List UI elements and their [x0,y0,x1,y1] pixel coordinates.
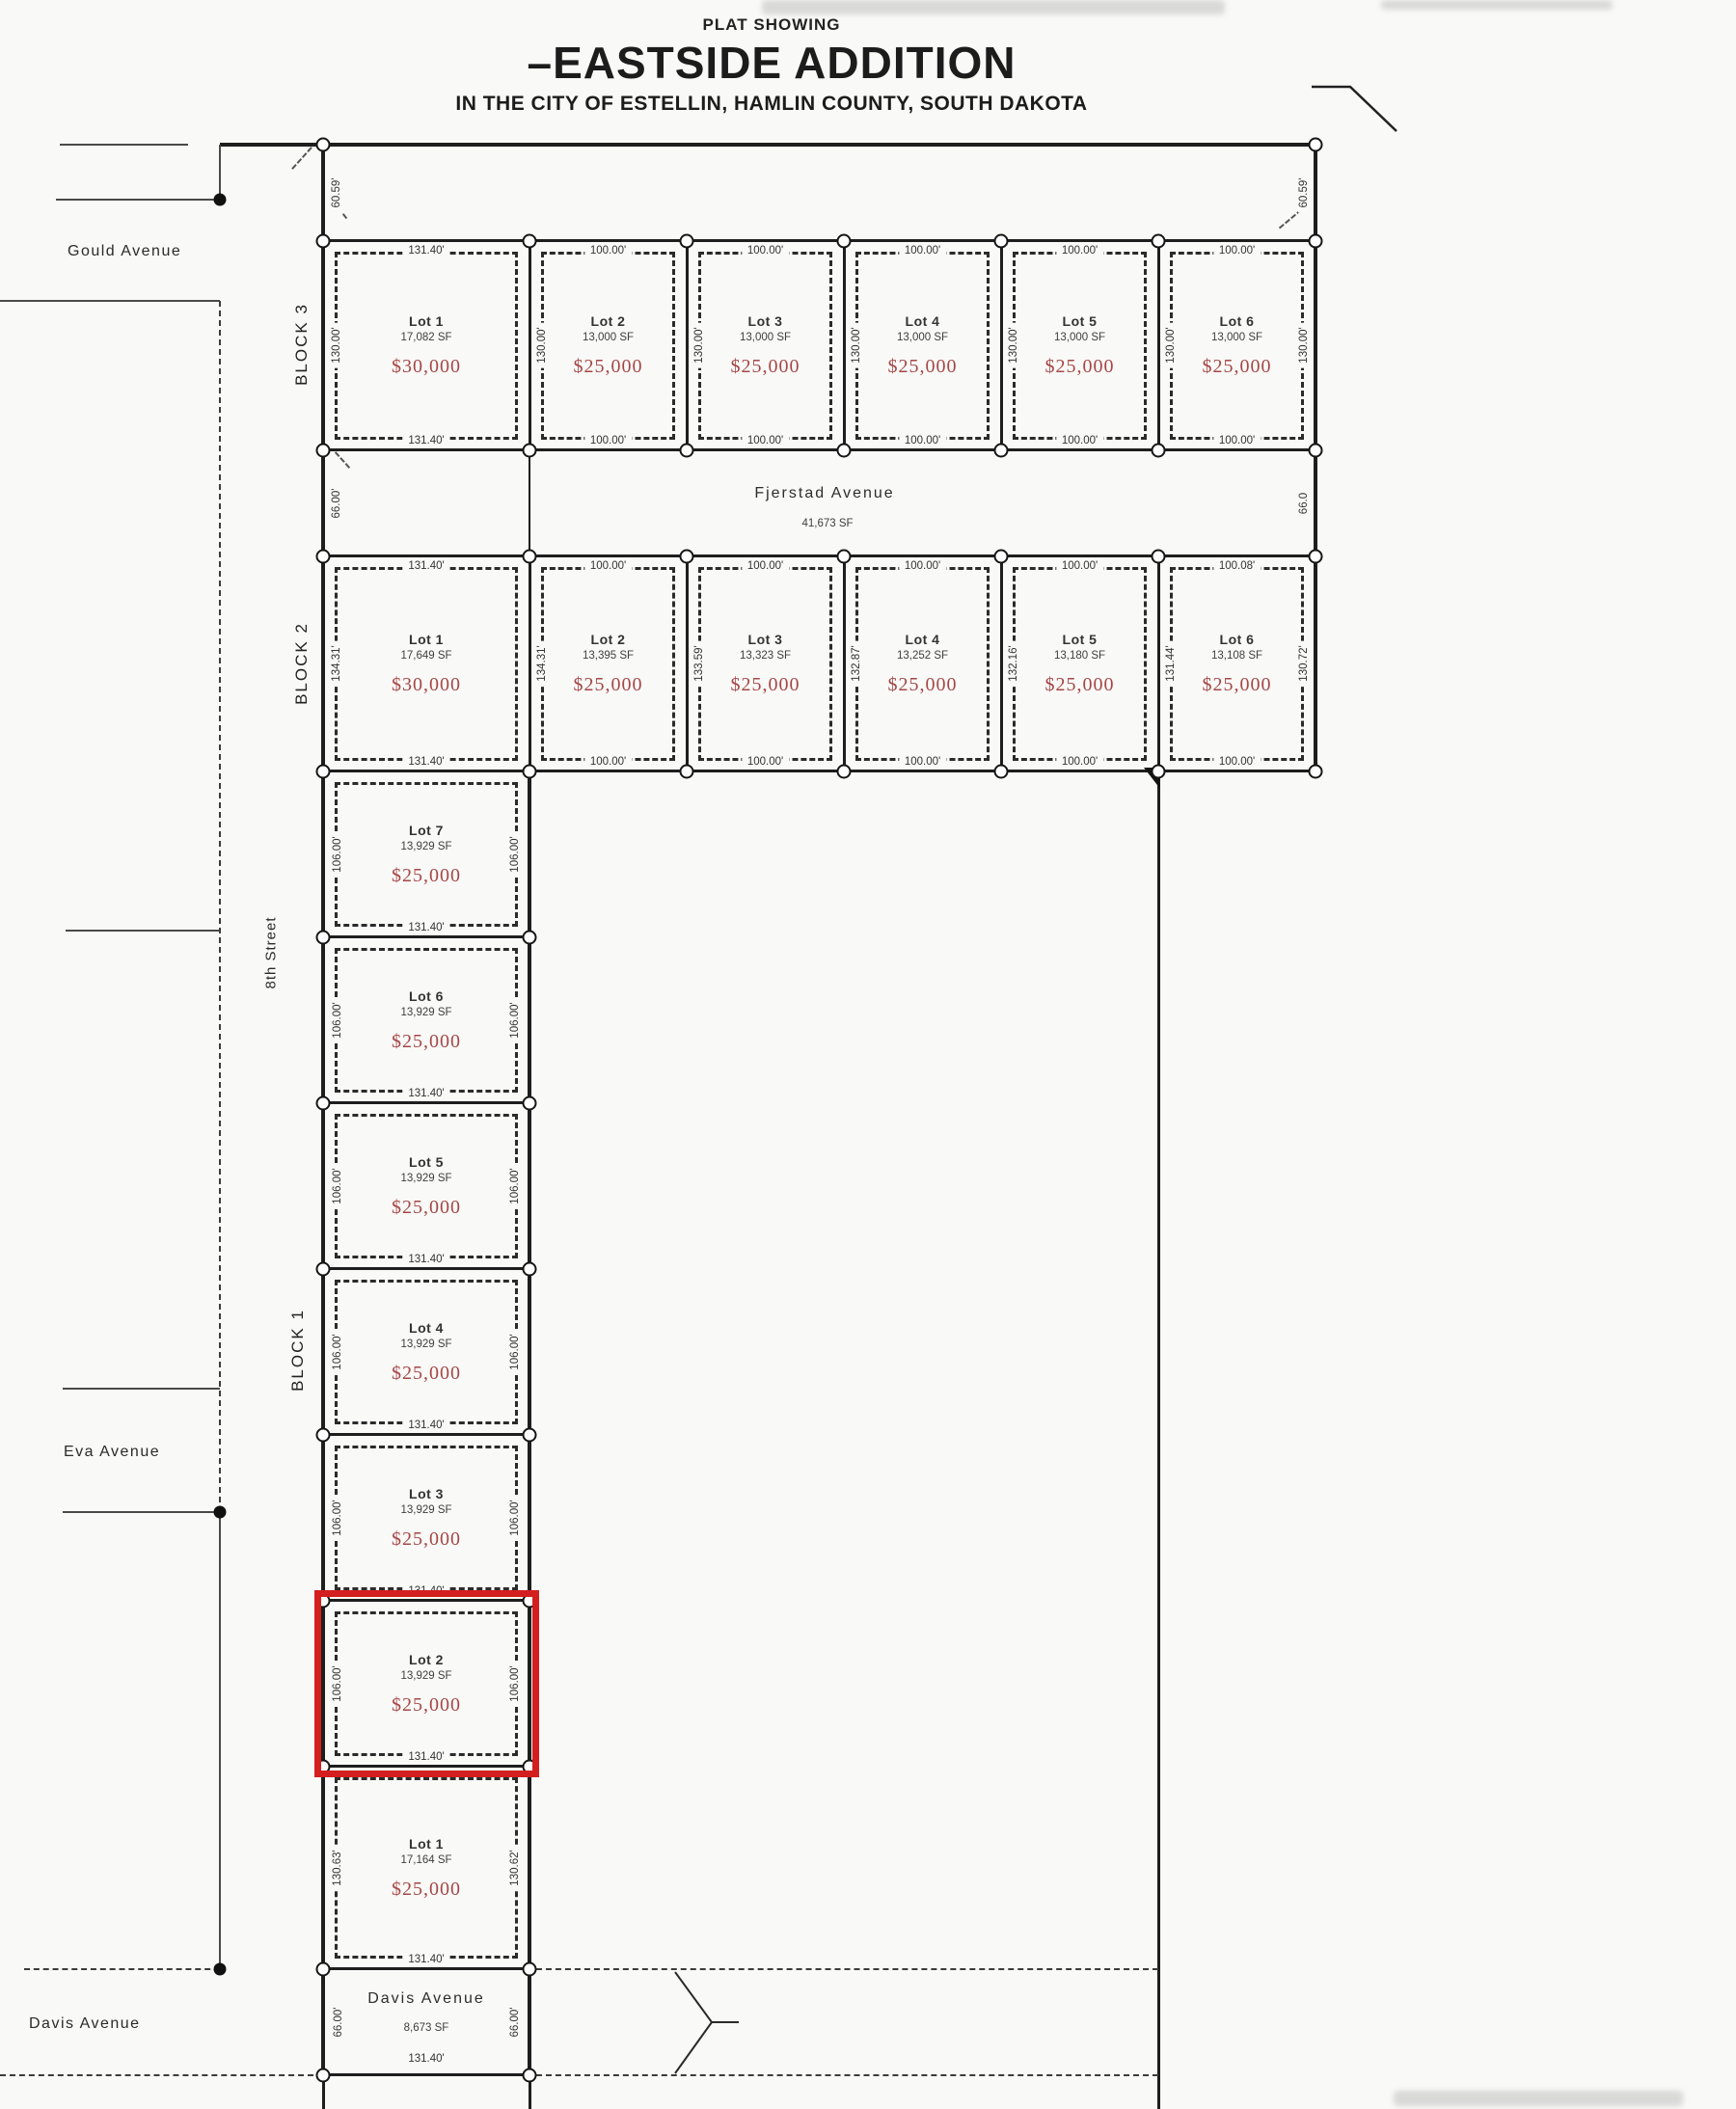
lot-block2-5: 100.00' Lot 5 13,180 SF $25,000 100.00' [1001,556,1158,771]
corner-arc-mark [291,147,312,170]
lot-dashed-boundary [335,1446,518,1590]
avenue-dim-bottom: 131.40' [402,2053,449,2065]
side-dim: 132.87' [851,640,862,686]
lot-dim-top: 100.00' [899,245,946,257]
survey-node [523,1962,537,1977]
lot-area: 13,000 SF [897,332,948,343]
lot-block2-4: 100.00' Lot 4 13,252 SF $25,000 100.00' [844,556,1001,771]
lot-name: Lot 1 [409,313,444,329]
lot-dim-top: 100.00' [584,245,632,257]
survey-node [523,1428,537,1443]
lot-dim-top: 131.40' [402,245,449,257]
side-dim: 106.00' [332,997,343,1042]
block2-label: BLOCK 2 [292,622,312,705]
lot-name: Lot 3 [409,1486,444,1501]
lot-price: $25,000 [392,865,461,887]
survey-node [316,1096,331,1111]
lot-name: Lot 5 [409,1154,444,1170]
side-dim: 130.00' [1008,322,1019,367]
survey-node [316,444,331,458]
margin-line [63,1388,220,1390]
lot-dim-bottom: 100.00' [1056,435,1103,446]
lot-block3-2: 100.00' Lot 2 13,000 SF $25,000 100.00' [529,241,687,450]
bracket-leader [665,1962,752,2083]
eighth-street-label: 8th Street [263,916,280,988]
lot-area: 17,649 SF [400,650,451,662]
lot-dashed-boundary [1170,567,1304,761]
margin-line [0,300,220,302]
lot-price: $25,000 [392,1528,461,1551]
lot-area: 13,395 SF [583,650,634,662]
lot-name: Lot 1 [409,632,444,647]
lot-area: 13,323 SF [740,650,791,662]
highlighted-lot-outline [314,1590,539,1777]
lot-block3-4: 100.00' Lot 4 13,000 SF $25,000 100.00' [844,241,1001,450]
lot-dashed-boundary [855,252,990,440]
lot-dashed-boundary [1013,252,1147,440]
lot-price: $25,000 [392,1197,461,1219]
lot-price: $25,000 [392,1879,461,1901]
lot-dashed-boundary [1013,567,1147,761]
lot-block2-2: 100.00' Lot 2 13,395 SF $25,000 100.00' [529,556,687,771]
lot-area: 13,929 SF [400,1504,451,1516]
corner-arc-mark [335,451,350,469]
plat-drawing: PLAT SHOWING –EASTSIDE ADDITION IN THE C… [0,0,1736,2109]
survey-node [523,444,537,458]
side-dim: 106.00' [332,831,343,877]
survey-node [1309,138,1323,152]
side-dim: 134.31' [536,640,548,686]
lot-block1-7: Lot 7 13,929 SF $25,000 131.40' [323,771,529,937]
survey-dot [214,1963,227,1976]
lot-dashed-boundary [335,782,518,927]
survey-node [523,1262,537,1277]
lot-dim-top: 100.00' [899,560,946,572]
lot-dim-top: 131.40' [402,560,449,572]
survey-node [316,1262,331,1277]
survey-node [994,234,1009,249]
lot-area: 13,180 SF [1054,650,1105,662]
lot-name: Lot 2 [591,313,626,329]
side-dim: 130.63' [332,1845,343,1890]
survey-node [1309,550,1323,564]
lot-area: 13,000 SF [1054,332,1105,343]
avenue-dim-left: 66.00' [333,2003,344,2042]
survey-node [994,444,1009,458]
lot-dashed-boundary [335,1114,518,1258]
survey-node [837,234,852,249]
lot-name: Lot 5 [1063,313,1098,329]
margin-line [60,144,188,146]
side-dim: 132.16' [1008,640,1019,686]
survey-node [680,765,694,779]
lot-dashed-boundary [698,252,832,440]
side-dim: 106.00' [509,997,521,1042]
lot-name: Lot 5 [1063,632,1098,647]
side-dim: 130.72' [1298,640,1310,686]
lot-price: $25,000 [888,356,958,378]
side-dim: 133.59' [693,640,705,686]
lot-name: Lot 1 [409,1836,444,1852]
lot-area: 13,929 SF [400,1173,451,1184]
gould-avenue-label: Gould Avenue [68,243,181,260]
lot-dim-top: 100.00' [742,245,789,257]
leader-line [1302,77,1418,145]
lot-dim-bottom: 100.00' [584,435,632,446]
lot-dashed-boundary [335,948,518,1093]
margin-line [219,1512,221,1969]
title-block: PLAT SHOWING –EASTSIDE ADDITION IN THE C… [386,15,1157,116]
lot-name: Lot 6 [1220,632,1255,647]
lot-block1-3: Lot 3 13,929 SF $25,000 131.40' [323,1435,529,1601]
margin-line [66,930,220,932]
lot-area: 13,108 SF [1211,650,1262,662]
lot-block1-5: Lot 5 13,929 SF $25,000 131.40' [323,1103,529,1269]
survey-node [1309,765,1323,779]
lot-area: 13,929 SF [400,1007,451,1018]
survey-node [1152,550,1166,564]
scan-artifact [1381,0,1613,10]
lot-dim-bottom: 131.40' [402,756,449,768]
survey-node [523,931,537,945]
lot-area: 13,929 SF [400,841,451,852]
lot-dashed-boundary [855,567,990,761]
lot-dim-bottom: 131.40' [402,1954,449,1965]
margin-line [56,199,220,201]
lot-dim-bottom: 100.00' [1213,435,1261,446]
dashed-line [0,2074,323,2076]
lot-area: 13,000 SF [1211,332,1262,343]
scan-artifact [762,0,1225,14]
lot-price: $25,000 [392,1363,461,1385]
edge-dim-ne: 60.59' [1298,174,1310,213]
lot-dim-bottom: 131.40' [402,435,449,446]
lot-price: $25,000 [1045,674,1115,696]
plat-title: –EASTSIDE ADDITION [386,37,1157,89]
lot-dim-top: 100.00' [742,560,789,572]
lot-price: $25,000 [1203,674,1272,696]
lot-block1-1: Lot 1 17,164 SF $25,000 131.40' [323,1767,529,1969]
fjerstad-avenue-area: 41,673 SF [801,518,853,529]
lot-dim-top: 100.00' [1056,245,1103,257]
survey-node [837,444,852,458]
survey-node [1152,234,1166,249]
side-dim: 106.00' [332,1163,343,1208]
side-dim: 106.00' [509,1329,521,1374]
lot-dim-bottom: 100.00' [742,756,789,768]
lot-price: $25,000 [731,674,800,696]
lot-block3-6: 100.00' Lot 6 13,000 SF $25,000 100.00' [1158,241,1316,450]
dashed-line [219,301,221,1512]
survey-node [837,550,852,564]
side-dim: 130.00' [693,322,705,367]
survey-node [680,444,694,458]
lot-dashed-boundary [541,252,675,440]
survey-node [837,765,852,779]
survey-node [994,550,1009,564]
margin-line [63,1511,220,1513]
lot-area: 17,082 SF [400,332,451,343]
lot-block2-6: 100.08' Lot 6 13,108 SF $25,000 100.00' [1158,556,1316,771]
eva-avenue-label: Eva Avenue [64,1444,160,1461]
boundary-line [220,143,1316,147]
lot-dim-top: 100.00' [1056,560,1103,572]
davis-avenue-area: 8,673 SF [404,2022,449,2034]
lot-price: $25,000 [1045,356,1115,378]
edge-dim-nw: 60.59' [331,174,342,213]
lot-block2-3: 100.00' Lot 3 13,323 SF $25,000 100.00' [687,556,844,771]
lot-dashed-boundary [541,567,675,761]
side-dim: 106.00' [509,1163,521,1208]
lot-dim-bottom: 131.40' [402,1254,449,1265]
lot-dim-top: 100.00' [584,560,632,572]
survey-node [523,1096,537,1111]
lot-name: Lot 4 [906,632,940,647]
davis-avenue-label: Davis Avenue [367,1990,485,2008]
survey-node [523,550,537,564]
lot-dim-bottom: 131.40' [402,922,449,933]
boundary-line [1157,772,1160,2109]
side-dim: 106.00' [332,1495,343,1540]
survey-node [316,1962,331,1977]
lot-price: $25,000 [574,356,643,378]
side-dim: 130.00' [1165,322,1177,367]
lot-dashed-boundary [335,1777,518,1959]
block1-label: BLOCK 1 [288,1309,308,1392]
lot-price: $25,000 [574,674,643,696]
lot-area: 17,164 SF [400,1854,451,1866]
lot-price: $25,000 [888,674,958,696]
lot-dim-bottom: 131.40' [402,1420,449,1431]
lot-dim-bottom: 100.00' [899,435,946,446]
lot-block1-6: Lot 6 13,929 SF $25,000 131.40' [323,937,529,1103]
lot-dim-top: 100.00' [1213,245,1261,257]
survey-node [316,138,331,152]
scan-artifact [1394,2091,1683,2106]
side-dim: 130.00' [1298,322,1310,367]
lot-dashed-boundary [335,1280,518,1424]
lot-name: Lot 6 [1220,313,1255,329]
dashed-line [536,2074,1158,2076]
avenue-dim-right: 66.0 [1298,488,1310,519]
avenue-dim-left: 66.00' [331,484,342,524]
lot-block1-4: Lot 4 13,929 SF $25,000 131.40' [323,1269,529,1435]
lot-dashed-boundary [335,567,518,761]
side-dim: 106.00' [509,831,521,877]
lot-dim-bottom: 100.00' [742,435,789,446]
survey-node [680,550,694,564]
margin-line [219,145,221,200]
davis-avenue-margin-label: Davis Avenue [29,2015,141,2033]
block3-label: BLOCK 3 [292,303,312,386]
lot-name: Lot 4 [409,1320,444,1336]
survey-node [316,2068,331,2083]
survey-node [1309,234,1323,249]
boundary-line [529,450,530,556]
lot-dashed-boundary [1170,252,1304,440]
side-dim: 134.31' [331,640,342,686]
dashed-line [24,1968,220,1970]
survey-node [316,931,331,945]
lot-price: $25,000 [731,356,800,378]
dashed-line [536,1968,1158,1970]
side-dim: 130.00' [851,322,862,367]
lot-price: $25,000 [392,1031,461,1053]
lot-area: 13,252 SF [897,650,948,662]
lot-dim-bottom: 100.00' [899,756,946,768]
survey-node [523,234,537,249]
survey-node [1309,444,1323,458]
lot-price: $30,000 [392,356,461,378]
fjerstad-avenue-label: Fjerstad Avenue [754,485,894,502]
survey-node [316,550,331,564]
lot-dim-bottom: 100.00' [1213,756,1261,768]
side-dim: 130.00' [331,322,342,367]
lot-name: Lot 3 [748,313,783,329]
survey-node [316,234,331,249]
lot-block3-5: 100.00' Lot 5 13,000 SF $25,000 100.00' [1001,241,1158,450]
survey-node [316,1428,331,1443]
survey-node [1152,444,1166,458]
side-dim: 131.44' [1165,640,1177,686]
lot-dim-bottom: 100.00' [584,756,632,768]
avenue-dim-right: 66.00' [509,2003,521,2042]
lot-dim-bottom: 100.00' [1056,756,1103,768]
survey-node [316,765,331,779]
lot-name: Lot 6 [409,988,444,1004]
survey-node [523,765,537,779]
lot-name: Lot 2 [591,632,626,647]
lot-name: Lot 4 [906,313,940,329]
side-dim: 106.00' [509,1495,521,1540]
side-dim: 130.62' [509,1845,521,1890]
side-dim: 106.00' [332,1329,343,1374]
survey-node [523,2068,537,2083]
survey-dot [214,194,227,206]
survey-node [994,765,1009,779]
lot-dim-bottom: 131.40' [402,1088,449,1099]
lot-price: $30,000 [392,674,461,696]
lot-area: 13,929 SF [400,1338,451,1350]
lot-area: 13,000 SF [583,332,634,343]
lot-price: $25,000 [1203,356,1272,378]
survey-node [680,234,694,249]
lot-dashed-boundary [698,567,832,761]
lot-block2-1: 131.40' Lot 1 17,649 SF $30,000 131.40' [323,556,529,771]
side-dim: 130.00' [536,322,548,367]
plat-eyebrow: PLAT SHOWING [386,15,1157,35]
lot-block3-1: 131.40' Lot 1 17,082 SF $30,000 131.40' [323,241,529,450]
plat-subtitle: IN THE CITY OF ESTELLIN, HAMLIN COUNTY, … [386,93,1157,116]
lot-area: 13,000 SF [740,332,791,343]
lot-block3-3: 100.00' Lot 3 13,000 SF $25,000 100.00' [687,241,844,450]
lot-name: Lot 7 [409,823,444,838]
survey-dot [214,1506,227,1519]
boundary-line [323,2073,529,2076]
lot-name: Lot 3 [748,632,783,647]
lot-dashed-boundary [335,252,518,440]
survey-node [1152,765,1166,779]
lot-dim-top: 100.08' [1213,560,1261,572]
